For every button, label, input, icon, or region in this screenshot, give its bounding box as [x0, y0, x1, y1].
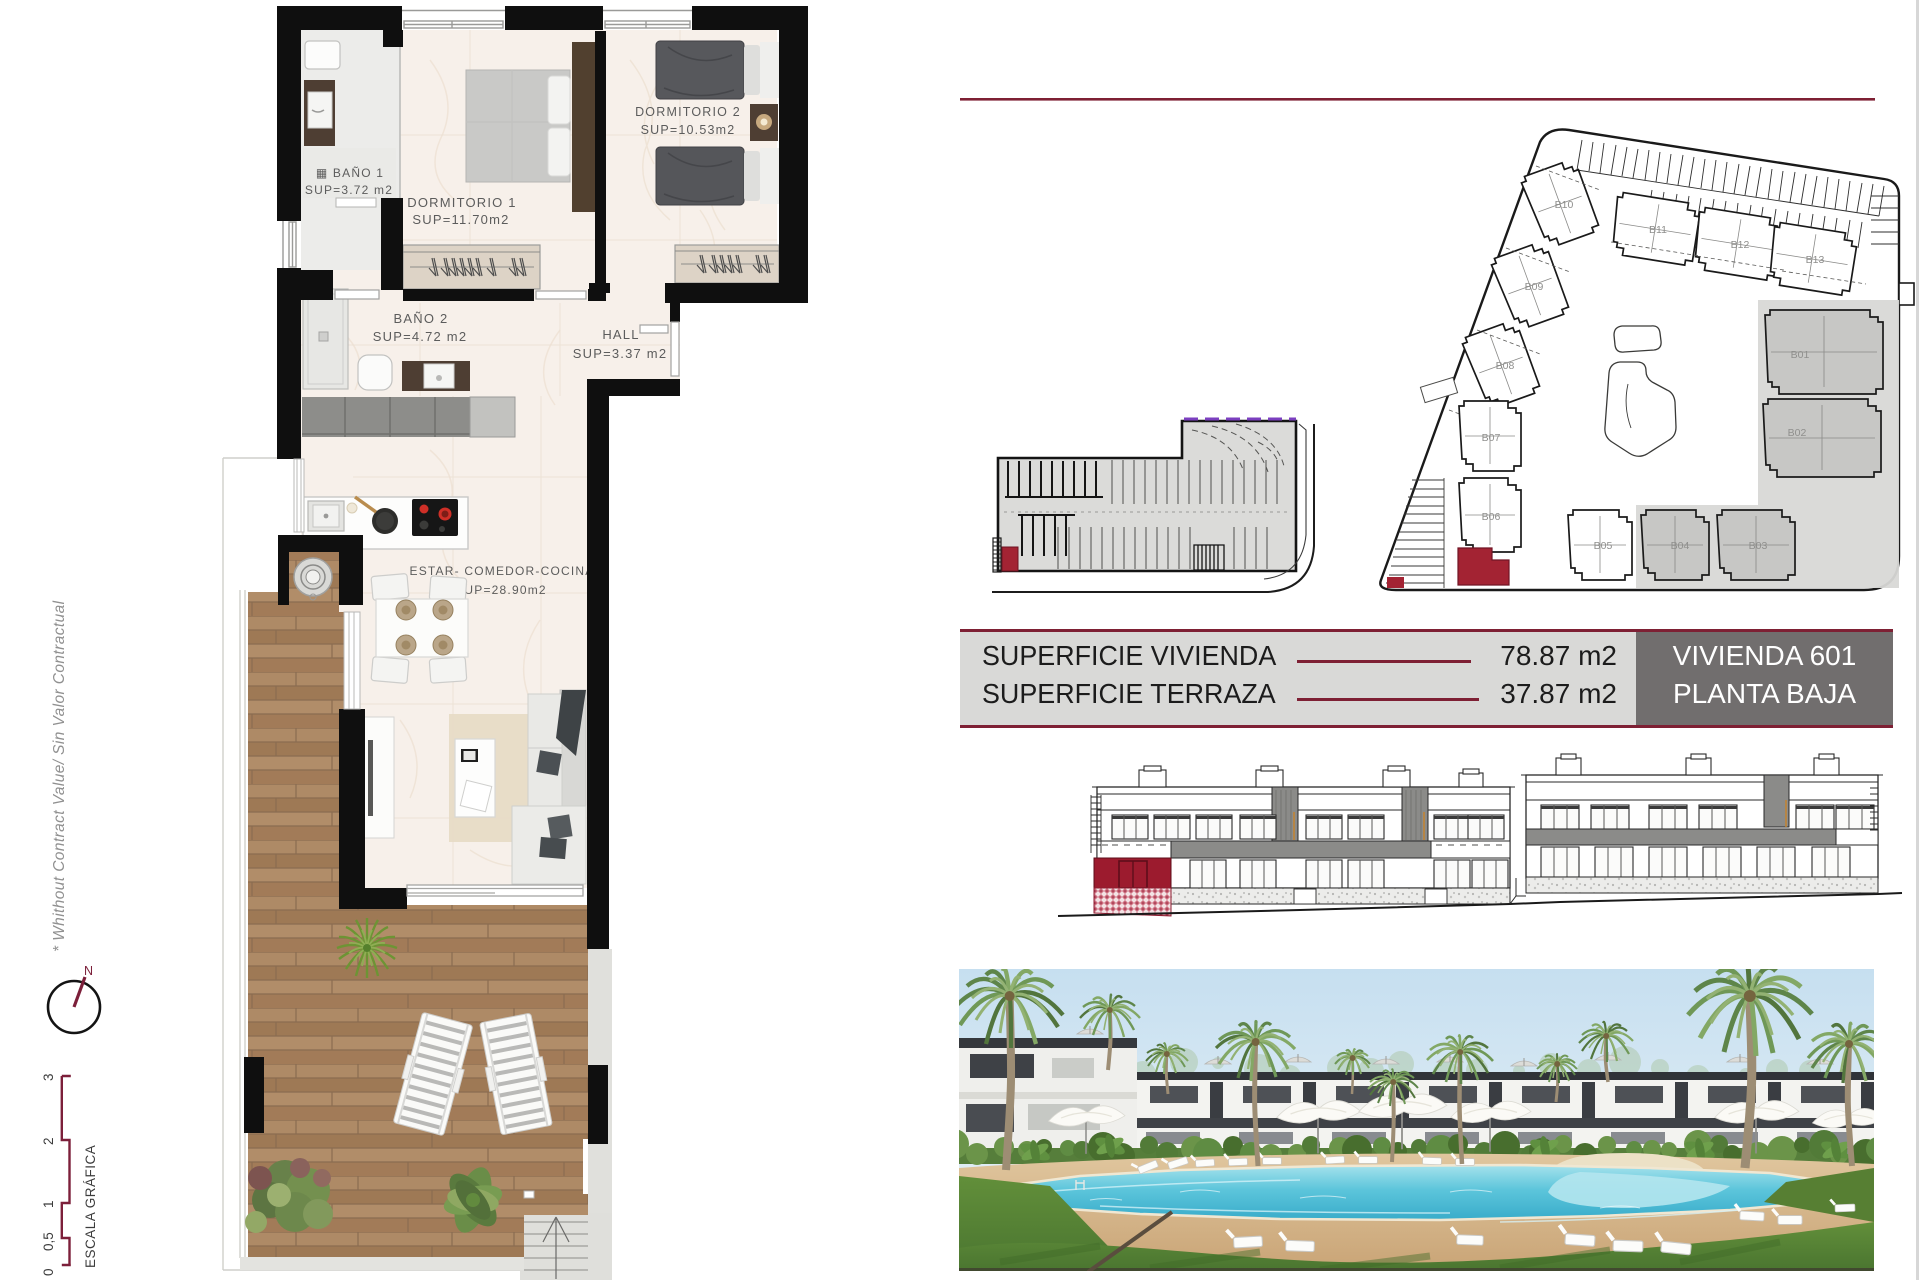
svg-text:B03: B03	[1749, 540, 1768, 552]
svg-text:B11: B11	[1649, 224, 1667, 236]
svg-text:B05: B05	[1594, 540, 1613, 552]
svg-text:B08: B08	[1496, 360, 1515, 372]
svg-text:B09: B09	[1525, 281, 1544, 293]
svg-text:SUP=3.72 m2: SUP=3.72 m2	[305, 183, 393, 197]
svg-text:B06: B06	[1482, 511, 1501, 523]
svg-text:B12: B12	[1731, 239, 1750, 251]
svg-text:▦ BAÑO 1: ▦ BAÑO 1	[316, 166, 384, 180]
svg-text:B01: B01	[1791, 349, 1810, 361]
svg-text:B02: B02	[1788, 427, 1807, 439]
svg-text:SUP=10.53m2: SUP=10.53m2	[641, 123, 736, 137]
svg-text:SUP=3.37 m2: SUP=3.37 m2	[573, 346, 668, 361]
svg-text:B04: B04	[1671, 540, 1690, 552]
svg-text:SUP=11.70m2: SUP=11.70m2	[412, 212, 509, 227]
svg-text:B10: B10	[1555, 199, 1574, 211]
svg-text:HALL: HALL	[602, 327, 639, 342]
svg-text:DORMITORIO 1: DORMITORIO 1	[407, 195, 517, 210]
svg-text:SUP=4.72 m2: SUP=4.72 m2	[373, 329, 468, 344]
svg-text:SUP=28.90m2: SUP=28.90m2	[455, 583, 547, 597]
svg-text:DORMITORIO 2: DORMITORIO 2	[635, 105, 741, 119]
svg-text:BAÑO 2: BAÑO 2	[394, 311, 449, 326]
svg-text:B07: B07	[1482, 432, 1501, 444]
svg-text:B13: B13	[1806, 254, 1825, 266]
